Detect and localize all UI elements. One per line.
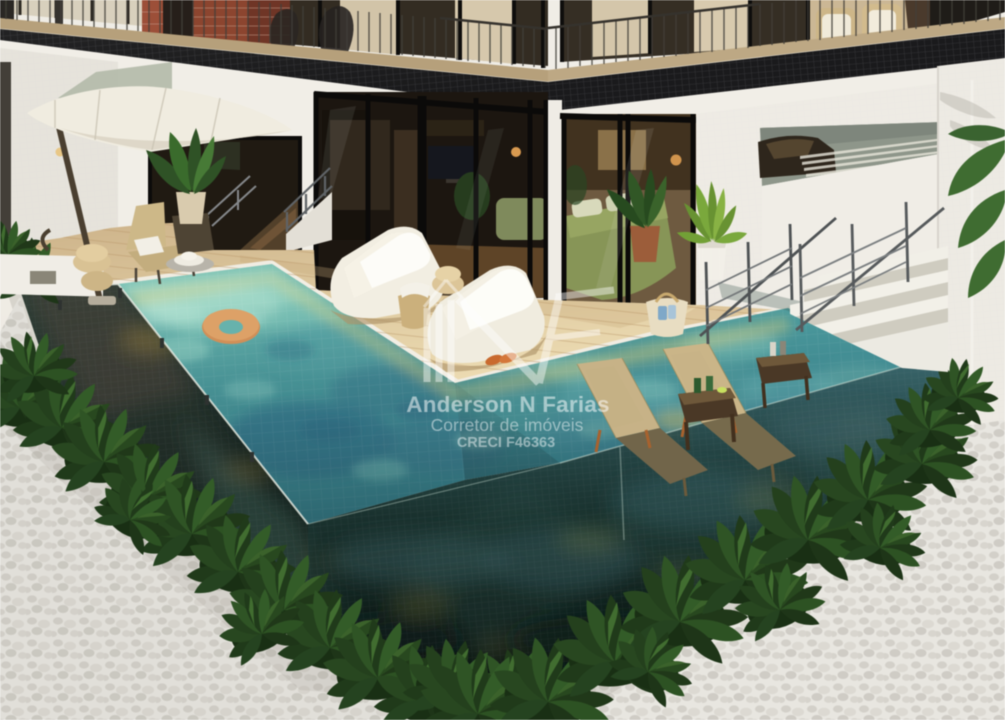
- svg-text:Corretor de imóveis: Corretor de imóveis: [431, 415, 584, 435]
- svg-text:Anderson N Farias: Anderson N Farias: [406, 392, 609, 417]
- svg-text:CRECI F46363: CRECI F46363: [457, 435, 555, 451]
